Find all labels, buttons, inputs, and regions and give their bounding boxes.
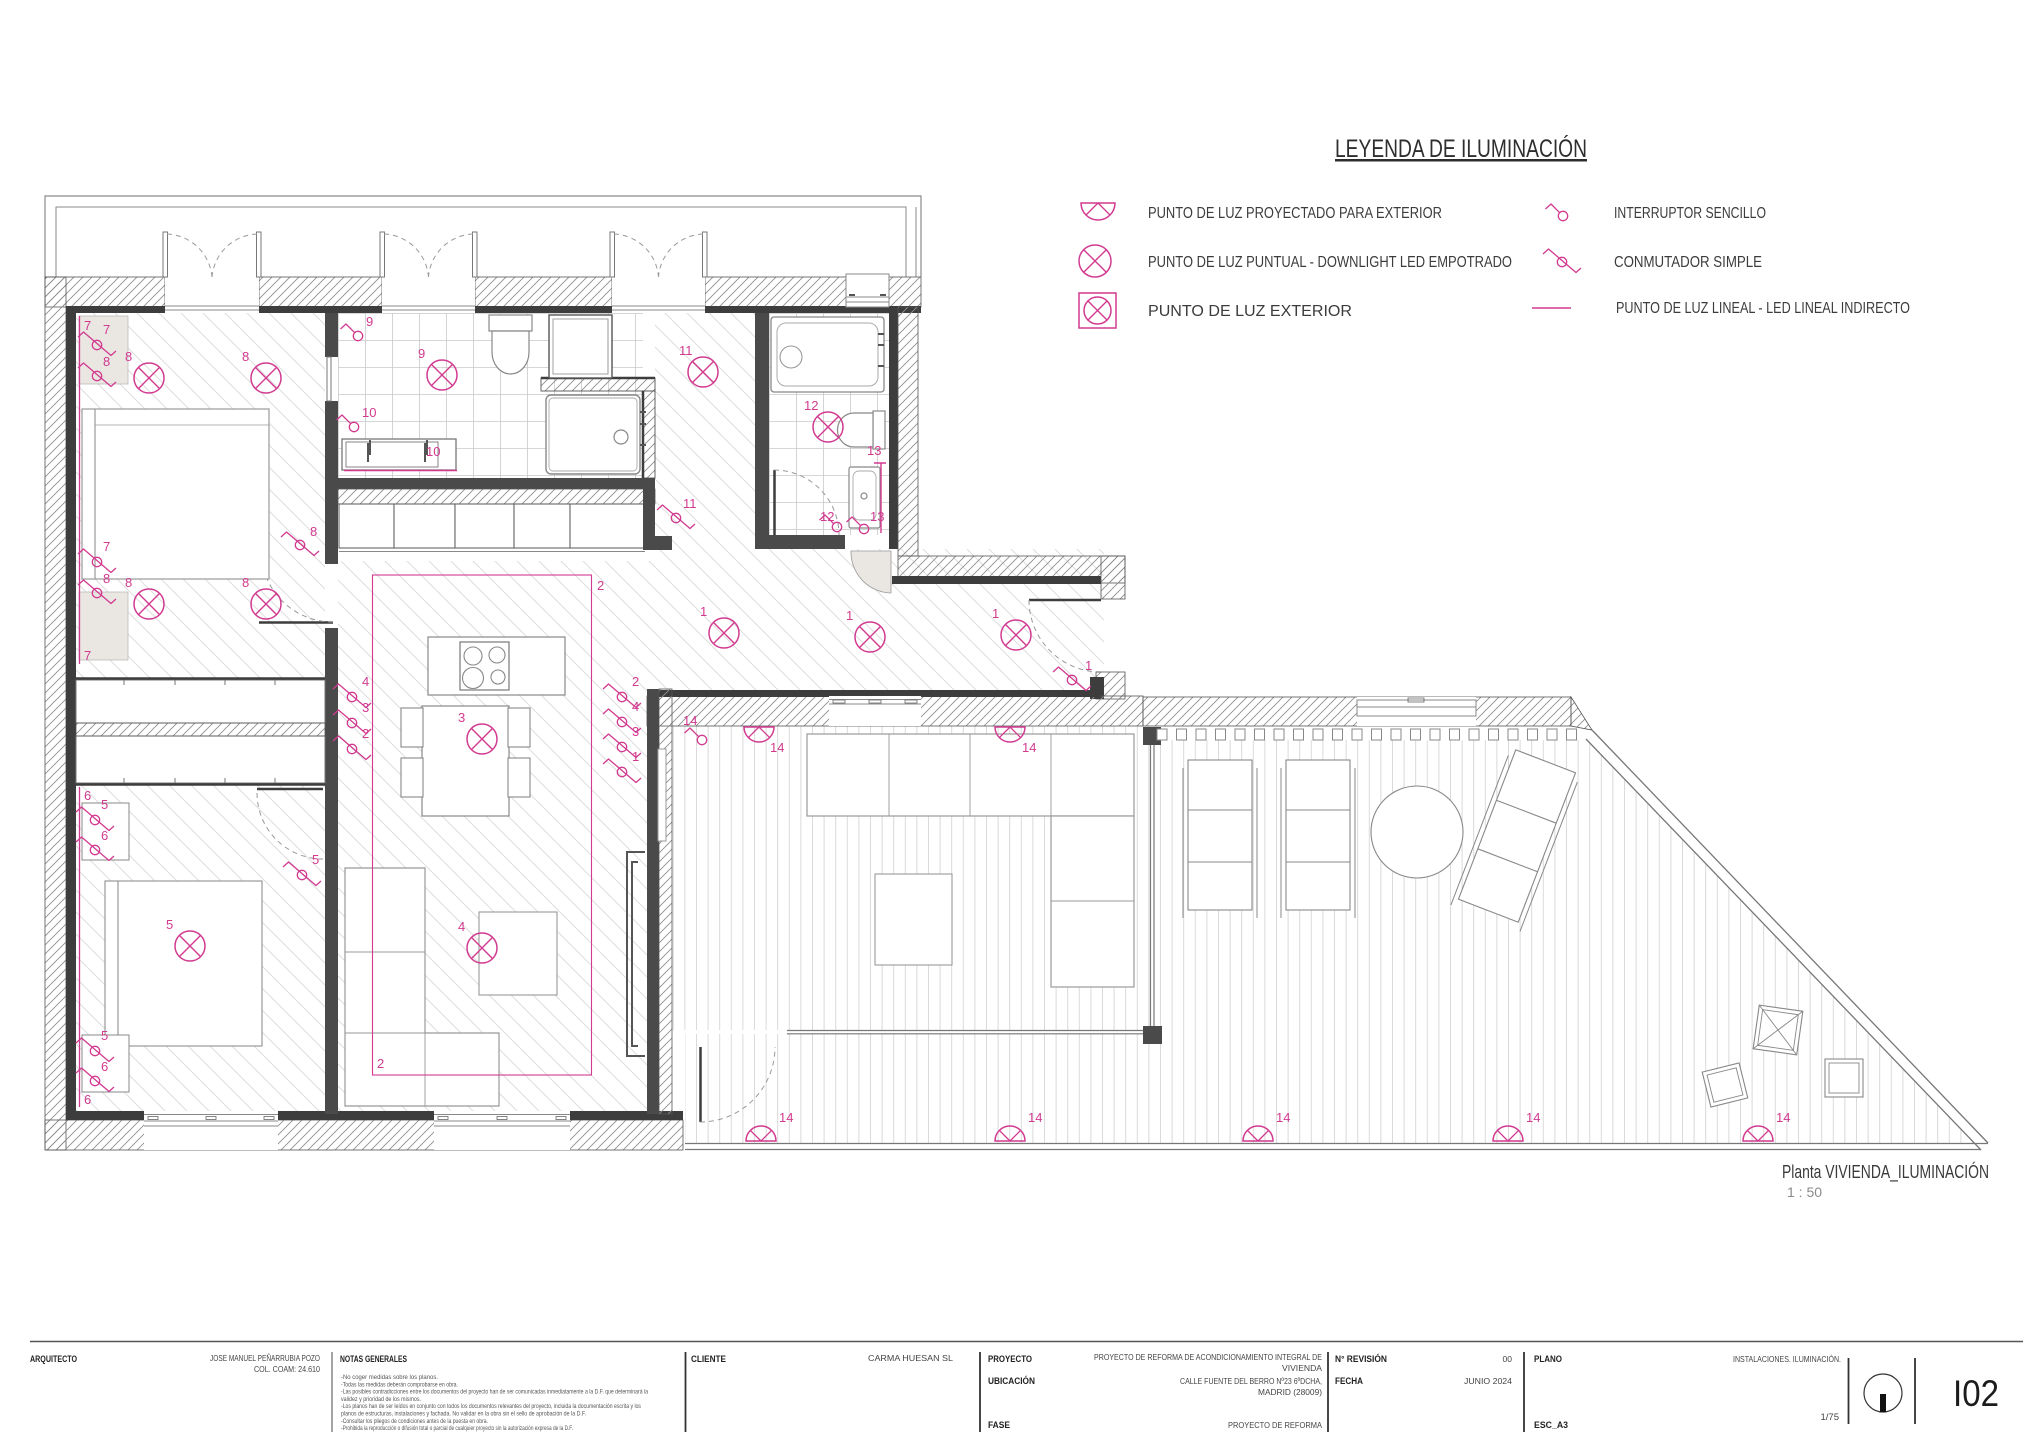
svg-text:9: 9	[366, 314, 373, 329]
svg-text:12: 12	[820, 509, 834, 524]
svg-text:10: 10	[362, 405, 376, 420]
svg-text:PLANO: PLANO	[1534, 1354, 1562, 1365]
svg-text:validez y prioridad de los mis: validez y prioridad de los mismos.	[341, 1397, 421, 1403]
svg-text:4: 4	[632, 699, 639, 714]
svg-text:-Las posibles contradicciones: -Las posibles contradicciones entre los …	[341, 1390, 649, 1396]
svg-text:-Los planos han de ser leídos: -Los planos han de ser leídos en conjunt…	[341, 1404, 641, 1410]
svg-text:CLIENTE: CLIENTE	[691, 1354, 726, 1365]
svg-text:7: 7	[84, 648, 91, 663]
svg-text:PUNTO DE LUZ PUNTUAL - DOWNLIG: PUNTO DE LUZ PUNTUAL - DOWNLIGHT LED EMP…	[1148, 254, 1512, 271]
svg-text:3: 3	[362, 700, 369, 715]
svg-text:INTERRUPTOR SENCILLO: INTERRUPTOR SENCILLO	[1614, 205, 1766, 222]
svg-text:6: 6	[101, 828, 108, 843]
svg-text:-Prohibida la reproducción o d: -Prohibida la reproducción o difusión to…	[341, 1426, 573, 1432]
svg-text:14: 14	[1776, 1110, 1790, 1125]
svg-text:11: 11	[683, 496, 697, 511]
svg-text:8: 8	[242, 349, 249, 364]
svg-text:9: 9	[418, 346, 425, 361]
svg-text:5: 5	[166, 917, 173, 932]
svg-text:FASE: FASE	[988, 1420, 1010, 1431]
svg-text:8: 8	[125, 349, 132, 364]
svg-text:4: 4	[458, 919, 465, 934]
svg-text:CALLE FUENTE DEL BERRO Nº23 6º: CALLE FUENTE DEL BERRO Nº23 6ºDCHA,	[1180, 1376, 1322, 1386]
svg-text:PROYECTO: PROYECTO	[988, 1354, 1032, 1365]
svg-text:planos de estructuras, instala: planos de estructuras, instalaciones y f…	[341, 1412, 586, 1418]
svg-text:Planta VIVIENDA_ILUMINACIÓN: Planta VIVIENDA_ILUMINACIÓN	[1782, 1161, 1989, 1183]
svg-text:1: 1	[632, 749, 639, 764]
svg-text:1: 1	[1085, 658, 1092, 673]
svg-text:14: 14	[770, 740, 784, 755]
svg-text:1/75: 1/75	[1821, 1412, 1840, 1423]
svg-text:14: 14	[1276, 1110, 1290, 1125]
svg-text:FECHA: FECHA	[1335, 1376, 1363, 1387]
svg-text:14: 14	[1526, 1110, 1540, 1125]
svg-text:14: 14	[779, 1110, 793, 1125]
svg-text:3: 3	[458, 710, 465, 725]
svg-text:4: 4	[362, 674, 369, 689]
svg-text:7: 7	[84, 318, 91, 333]
svg-text:8: 8	[103, 354, 110, 369]
svg-text:7: 7	[103, 322, 110, 337]
svg-text:1 : 50: 1 : 50	[1787, 1184, 1822, 1200]
svg-text:ARQUITECTO: ARQUITECTO	[30, 1354, 77, 1365]
svg-text:6: 6	[84, 1092, 91, 1107]
svg-text:14: 14	[683, 713, 697, 728]
svg-text:PUNTO DE LUZ PROYECTADO PARA E: PUNTO DE LUZ PROYECTADO PARA EXTERIOR	[1148, 205, 1442, 222]
svg-text:PROYECTO DE REFORMA DE ACONDIC: PROYECTO DE REFORMA DE ACONDICIONAMIENTO…	[1094, 1352, 1322, 1362]
svg-text:2: 2	[597, 578, 604, 593]
svg-text:PROYECTO DE REFORMA: PROYECTO DE REFORMA	[1228, 1420, 1322, 1430]
svg-text:3: 3	[632, 724, 639, 739]
svg-text:VIVIENDA: VIVIENDA	[1282, 1363, 1322, 1373]
svg-text:5: 5	[101, 797, 108, 812]
svg-text:10: 10	[426, 444, 440, 459]
svg-text:UBICACIÓN: UBICACIÓN	[988, 1375, 1035, 1387]
svg-text:14: 14	[1028, 1110, 1042, 1125]
svg-text:ESC_A3: ESC_A3	[1534, 1420, 1568, 1431]
svg-text:1: 1	[846, 608, 853, 623]
svg-text:2: 2	[362, 726, 369, 741]
svg-text:1: 1	[992, 606, 999, 621]
svg-text:-Todas las medidas deberán com: -Todas las medidas deberán comprobarse e…	[341, 1382, 458, 1388]
svg-text:PUNTO DE LUZ EXTERIOR: PUNTO DE LUZ EXTERIOR	[1148, 303, 1352, 320]
svg-text:PUNTO DE LUZ LINEAL - LED LINE: PUNTO DE LUZ LINEAL - LED LINEAL INDIREC…	[1616, 300, 1910, 317]
svg-text:N° REVISIÓN: N° REVISIÓN	[1335, 1353, 1387, 1365]
svg-text:6: 6	[101, 1059, 108, 1074]
svg-text:8: 8	[310, 524, 317, 539]
svg-text:CARMA HUESAN SL: CARMA HUESAN SL	[868, 1353, 953, 1363]
svg-text:8: 8	[242, 575, 249, 590]
svg-text:I02: I02	[1953, 1373, 1999, 1414]
svg-text:5: 5	[101, 1028, 108, 1043]
svg-text:00: 00	[1503, 1354, 1513, 1364]
svg-text:13: 13	[867, 443, 881, 458]
svg-text:INSTALACIONES. ILUMINACIÓN.: INSTALACIONES. ILUMINACIÓN.	[1733, 1354, 1841, 1364]
svg-text:13: 13	[870, 509, 884, 524]
svg-text:LEYENDA DE ILUMINACIÓN: LEYENDA DE ILUMINACIÓN	[1335, 134, 1587, 163]
svg-text:MADRID (28009): MADRID (28009)	[1258, 1387, 1322, 1397]
svg-text:-Consultar los pliegos de cond: -Consultar los pliegos de condiciones an…	[341, 1419, 488, 1425]
svg-text:CONMUTADOR SIMPLE: CONMUTADOR SIMPLE	[1614, 254, 1762, 271]
svg-text:6: 6	[84, 788, 91, 803]
svg-text:JOSE MANUEL PEÑARRUBIA POZO: JOSE MANUEL PEÑARRUBIA POZO	[210, 1353, 320, 1363]
svg-text:2: 2	[377, 1056, 384, 1071]
svg-text:5: 5	[312, 852, 319, 867]
svg-text:COL. COAM: 24.610: COL. COAM: 24.610	[254, 1364, 320, 1374]
svg-text:-No coger medidas sobre los pl: -No coger medidas sobre los planos.	[341, 1375, 438, 1381]
svg-text:8: 8	[103, 571, 110, 586]
svg-text:2: 2	[632, 674, 639, 689]
svg-text:11: 11	[679, 343, 693, 358]
svg-text:12: 12	[804, 398, 818, 413]
svg-text:JUNIO 2024: JUNIO 2024	[1464, 1376, 1512, 1386]
svg-text:NOTAS GENERALES: NOTAS GENERALES	[340, 1354, 407, 1365]
svg-text:8: 8	[125, 575, 132, 590]
svg-text:1: 1	[700, 604, 707, 619]
svg-text:7: 7	[103, 539, 110, 554]
svg-text:14: 14	[1022, 740, 1036, 755]
